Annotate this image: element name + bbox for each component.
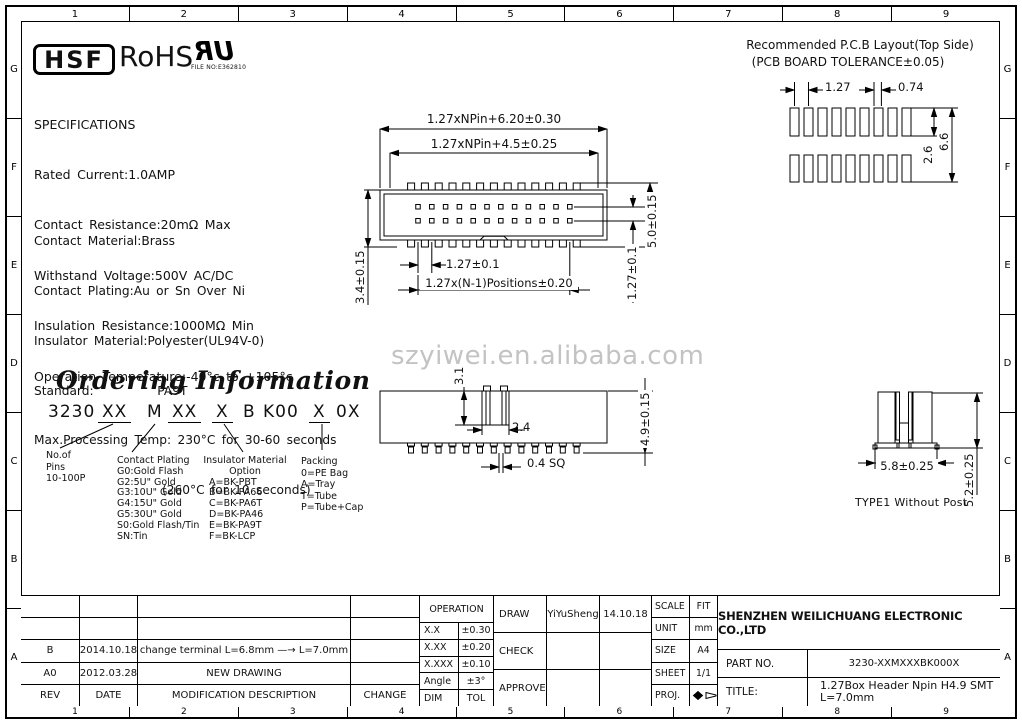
grid-column-label: 5 xyxy=(456,7,565,21)
table-cell xyxy=(547,633,599,669)
tolerance-value: ±3° xyxy=(459,673,493,689)
spec-line: Rated Current:1.0AMP xyxy=(34,167,293,184)
dim-label-positions: 1.27x(N-1)Positions±0.20 xyxy=(420,276,578,290)
table-cell xyxy=(351,663,419,684)
dim-label-row-gap: 1.27±0.1 xyxy=(625,244,639,302)
dim-label-pad-pitch: 1.27 xyxy=(825,80,851,94)
dim-label-body-height: 3.4±0.15 xyxy=(353,248,367,306)
table-cell xyxy=(80,596,137,617)
size-value: A4 xyxy=(690,640,717,661)
sheet-value: 1/1 xyxy=(690,663,717,684)
table-cell xyxy=(547,670,599,706)
material-line: Insulator Material:Polyester(UL94V-0) xyxy=(34,333,336,350)
grid-row-label: E xyxy=(7,216,21,314)
grid-column-label: 4 xyxy=(347,7,456,21)
row-label: UNIT xyxy=(652,618,689,639)
dim-label-overall-length: 1.27xNPin+6.20±0.30 xyxy=(398,112,590,126)
table-cell xyxy=(600,670,651,706)
scale-value: FIT xyxy=(690,596,717,617)
ul-file-number: FILE NO:E362810 xyxy=(191,64,246,71)
grid-row-label: D xyxy=(7,314,21,412)
grid-band-bottom: 1 2 3 4 5 6 7 8 9 xyxy=(21,707,1000,717)
grid-column-label: 9 xyxy=(891,707,1000,717)
ordering-packing-legend: Packing 0=PE Bag A=Tray T=Tube P=Tube+Ca… xyxy=(301,456,363,514)
grid-band-right: G F E D C B A xyxy=(1000,21,1015,706)
pcb-layout-title: Recommended P.C.B Layout(Top Side) xyxy=(720,38,1000,52)
table-cell xyxy=(21,618,79,639)
grid-column-label: 2 xyxy=(129,707,238,717)
drawn-by: YiYuSheng xyxy=(547,596,599,632)
grid-band-left: G F E D C B A xyxy=(7,21,21,706)
column-header: REV xyxy=(21,685,79,706)
drawing-title: 1.27Box Header Npin H4.9 SMT L=7.0mm xyxy=(808,678,1000,706)
row-label: DRAW xyxy=(494,596,546,632)
material-line: Contact Plating:Au or Sn Over Ni xyxy=(34,283,336,300)
legend-line: T=Tube xyxy=(301,491,363,503)
dim-label-pad-length: 2.6 xyxy=(921,144,935,166)
sheet-info-table: SCALE FIT UNIT mm SIZE A4 SHEET 1/1 PROJ… xyxy=(651,596,717,706)
spec-line: SPECIFICATIONS xyxy=(34,117,293,134)
grid-column-label: 4 xyxy=(347,707,456,717)
legend-line: No.of xyxy=(46,450,85,462)
column-header: DATE xyxy=(80,685,137,706)
legend-line: Pins xyxy=(46,462,85,474)
column-header: OPERATION xyxy=(420,596,493,622)
bottom-edge-pins xyxy=(408,240,581,247)
section-view-caption: TYPE1 Without Post xyxy=(855,496,967,509)
projection-cell xyxy=(690,685,717,706)
grid-column-label: 6 xyxy=(564,707,673,717)
dim-label-total-height: 4.9±0.15 xyxy=(638,390,652,448)
tolerance-dim: X.XXX xyxy=(420,657,458,673)
part-no-label: PART NO. xyxy=(718,650,808,677)
grid-row-label: G xyxy=(7,21,21,118)
table-cell xyxy=(600,633,651,669)
row-label: SHEET xyxy=(652,663,689,684)
row-label: CHECK xyxy=(494,633,546,669)
revision-description: NEW DRAWING xyxy=(138,663,350,684)
title-block: B 2014.10.18 change terminal L=6.8mm —→ … xyxy=(21,595,1000,706)
hsf-logo-text: HSF xyxy=(44,46,104,74)
dim-label-pad-width: 0.74 xyxy=(898,80,924,94)
tolerance-value: ±0.20 xyxy=(459,640,493,656)
revision-date: 2014.10.18 xyxy=(80,640,137,661)
grid-column-label: 7 xyxy=(673,707,782,717)
pcb-pad-row-bottom xyxy=(790,155,911,182)
grid-column-label: 1 xyxy=(21,7,129,21)
grid-row-label: B xyxy=(1000,510,1015,608)
table-cell xyxy=(80,618,137,639)
dim-label-key-width: 2.4 xyxy=(512,420,530,434)
signoff-table: DRAW YiYuSheng 14.10.18 CHECK APPROVE xyxy=(493,596,651,706)
column-header: MODIFICATION DESCRIPTION xyxy=(138,685,350,706)
column-header: CHANGE xyxy=(351,685,419,706)
table-cell xyxy=(351,640,419,661)
grid-column-label: 1 xyxy=(21,707,129,717)
company-block: SHENZHEN WEILICHUANG ELECTRONIC CO.,LTD … xyxy=(717,596,1000,706)
legend-line: Packing xyxy=(301,456,363,468)
dim-label-section-width: 5.8±0.25 xyxy=(876,459,938,473)
grid-row-label: C xyxy=(7,412,21,510)
grid-row-label: E xyxy=(1000,216,1015,314)
grid-column-label: 3 xyxy=(238,7,347,21)
grid-row-label: B xyxy=(7,510,21,608)
grid-column-label: 6 xyxy=(564,7,673,21)
table-cell xyxy=(351,596,419,617)
third-angle-projection-icon xyxy=(691,689,717,702)
legend-line: 0=PE Bag xyxy=(301,468,363,480)
legend-line: S0:Gold Flash/Tin xyxy=(117,521,199,532)
top-edge-pins xyxy=(408,183,581,190)
pcb-layout-subtitle: (PCB BOARD TOLERANCE±0.05) xyxy=(722,55,974,69)
ordering-plating-legend: Contact Plating G0:Gold Flash G2:5U" Gol… xyxy=(117,456,199,542)
grid-band-top: 1 2 3 4 5 6 7 8 9 xyxy=(21,7,1000,21)
ordering-pins-legend: No.of Pins 10-100P xyxy=(46,450,85,485)
drawn-date: 14.10.18 xyxy=(600,596,651,632)
dim-label-key-height: 3.1 xyxy=(452,365,466,387)
unit-value: mm xyxy=(690,618,717,639)
table-cell xyxy=(138,618,350,639)
ordering-leader-lines xyxy=(40,418,360,458)
ordering-insulator-legend: Insulator Material Option A=BK-PBT B=BK-… xyxy=(197,456,293,542)
grid-column-label: 2 xyxy=(129,7,238,21)
legend-line: F=BK-LCP xyxy=(197,532,293,543)
ordering-information-title: Ordering Information xyxy=(56,366,370,395)
revision-description: change terminal L=6.8mm —→ L=7.0mm xyxy=(138,640,350,661)
legend-line: SN:Tin xyxy=(117,532,199,543)
table-cell xyxy=(138,596,350,617)
revision-id: B xyxy=(21,640,79,661)
grid-column-label: 3 xyxy=(238,707,347,717)
tolerance-dim: DIM xyxy=(420,690,458,706)
dim-label-pitch: 1.27±0.1 xyxy=(446,257,500,271)
dim-label-pin-square: 0.4 SQ xyxy=(527,456,565,470)
table-cell xyxy=(21,596,79,617)
tolerance-value: TOL xyxy=(459,690,493,706)
grid-row-label: A xyxy=(1000,608,1015,706)
legend-line: P=Tube+Cap xyxy=(301,502,363,514)
engineering-drawing-sheet: 1 2 3 4 5 6 7 8 9 1 2 3 4 5 6 7 8 9 G F … xyxy=(0,0,1022,724)
grid-column-label: 9 xyxy=(891,7,1000,21)
legend-line: A=Tray xyxy=(301,479,363,491)
grid-column-label: 8 xyxy=(782,707,891,717)
company-name: SHENZHEN WEILICHUANG ELECTRONIC CO.,LTD xyxy=(718,596,1000,650)
title-label: TITLE: xyxy=(718,678,808,706)
hsf-logo: HSF xyxy=(33,44,115,75)
dim-label-pad-span: 6.6 xyxy=(937,131,951,153)
grid-row-label: F xyxy=(1000,118,1015,216)
contact-grid xyxy=(416,205,572,224)
legend-line: Option xyxy=(197,467,293,478)
row-label: SIZE xyxy=(652,640,689,661)
legend-line: G0:Gold Flash xyxy=(117,467,199,478)
grid-row-label: F xyxy=(7,118,21,216)
row-label: APPROVE xyxy=(494,670,546,706)
revision-table: B 2014.10.18 change terminal L=6.8mm —→ … xyxy=(21,596,419,706)
tolerance-table: OPERATION X.X ±0.30 X.XX ±0.20 X.XXX ±0.… xyxy=(419,596,493,706)
dim-label-inner-length: 1.27xNPin+4.5±0.25 xyxy=(401,137,587,151)
tolerance-dim: X.X xyxy=(420,623,458,639)
smt-pins xyxy=(408,443,581,453)
tolerance-dim: X.XX xyxy=(420,640,458,656)
tolerance-value: ±0.30 xyxy=(459,623,493,639)
tolerance-value: ±0.10 xyxy=(459,657,493,673)
table-cell xyxy=(351,618,419,639)
tolerance-dim: Angle xyxy=(420,673,458,689)
pcb-pad-row-top xyxy=(790,108,911,136)
ul-recognized-icon: UR xyxy=(189,36,241,66)
part-no-value: 3230-XXMXXXBK000X xyxy=(808,650,1000,677)
row-label: PROJ. xyxy=(652,685,689,706)
legend-line: E=BK-PA9T xyxy=(197,521,293,532)
material-line: Contact Material:Brass xyxy=(34,233,336,250)
grid-row-label: G xyxy=(1000,21,1015,118)
rohs-label: RoHS xyxy=(119,40,193,73)
revision-date: 2012.03.28 xyxy=(80,663,137,684)
grid-row-label: A xyxy=(7,608,21,706)
svg-text:UR: UR xyxy=(193,37,234,66)
dim-label-total-width: 5.0±0.15 xyxy=(645,192,659,250)
grid-column-label: 8 xyxy=(782,7,891,21)
grid-column-label: 5 xyxy=(456,707,565,717)
legend-line: 10-100P xyxy=(46,473,85,485)
row-label: SCALE xyxy=(652,596,689,617)
grid-column-label: 7 xyxy=(673,7,782,21)
revision-id: A0 xyxy=(21,663,79,684)
drawing-title-line: L=7.0mm xyxy=(820,692,874,705)
